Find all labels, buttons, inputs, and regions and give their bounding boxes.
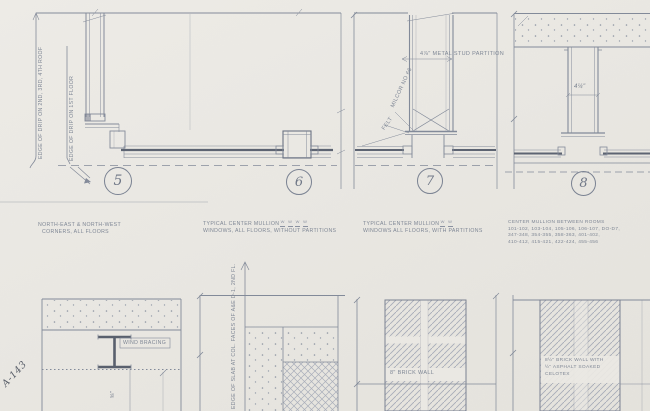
window-mark: W <box>295 219 300 227</box>
detail-8-linework <box>505 11 650 189</box>
caption-detail-5-line1: NORTH-EAST & NORTH-WEST <box>38 222 121 228</box>
window-mark: W <box>303 219 308 227</box>
label-edge-of-drip-first-floor: EDGE OF DRIP ON 1ST FLOOR <box>69 76 75 161</box>
blueprint-sheet: EDGE OF DRIP ON 2ND, 3RD, 4TH ROOF EDGE … <box>0 0 650 411</box>
window-marks-detail-6: W W W W <box>280 219 308 227</box>
label-celotex-wall-line2: ½" ASPHALT SOAKED <box>545 365 600 371</box>
label-edge-of-slab: EDGE OF SLAB AT COL. FACES OF A&E D-1, 2… <box>231 263 237 409</box>
caption-detail-7-line1: TYPICAL CENTER MULLION <box>363 221 439 227</box>
detail-7-bubble: 7 <box>417 168 443 194</box>
caption-detail-6-line1: TYPICAL CENTER MULLION <box>203 221 279 227</box>
window-mark: W <box>440 219 445 227</box>
caption-detail-8-line3: 347-348, 354-355, 358-363, 401-402, <box>508 233 600 239</box>
dimension-bottom-detail-1: ⅝" <box>110 391 117 398</box>
detail-8-bubble: 8 <box>571 171 596 196</box>
label-edge-of-drip-roof: EDGE OF DRIP ON 2ND, 3RD, 4TH ROOF <box>38 47 44 159</box>
label-metal-stud-partition: 4⅞" METAL STUD PARTITION <box>420 51 504 58</box>
caption-detail-6-line2: WINDOWS, ALL FLOORS, WITHOUT PARTITIONS <box>203 228 336 234</box>
label-celotex-wall-line1: 8½" BRICK WALL WITH <box>545 358 604 364</box>
caption-detail-8-line2: 101-102, 103-104, 105-106, 106-107, DO-D… <box>508 227 620 233</box>
celotex-wall-linework <box>510 295 650 411</box>
detail-6-linework <box>190 13 345 189</box>
label-wind-bracing: WIND BRACING <box>123 340 166 346</box>
detail-6-bubble: 6 <box>286 169 312 195</box>
window-mark: W <box>280 219 285 227</box>
edge-of-slab-linework <box>197 262 345 411</box>
window-marks-detail-7: W W <box>440 219 453 227</box>
caption-detail-5-line2: CORNERS, ALL FLOORS <box>42 229 109 235</box>
label-celotex-wall-line3: CELOTEX <box>545 372 570 378</box>
caption-detail-8-line1: CENTER MULLION BETWEEN ROOMS <box>508 220 605 226</box>
window-mark: W <box>448 219 453 227</box>
window-mark: W <box>288 219 293 227</box>
caption-detail-8-line4: 410-412, 415-421, 422-424, 455-456 <box>508 240 598 246</box>
detail-5-bubble: 5 <box>104 167 132 195</box>
caption-detail-7-line2: WINDOWS ALL FLOORS, WITH PARTITIONS <box>363 228 483 234</box>
drawing-linework <box>0 0 650 411</box>
brick-wall-linework <box>354 293 499 411</box>
label-brick-wall: 8" BRICK WALL <box>390 370 434 377</box>
dimension-mullion-width: 4¼" <box>574 84 586 91</box>
detail-7-linework <box>351 12 497 189</box>
